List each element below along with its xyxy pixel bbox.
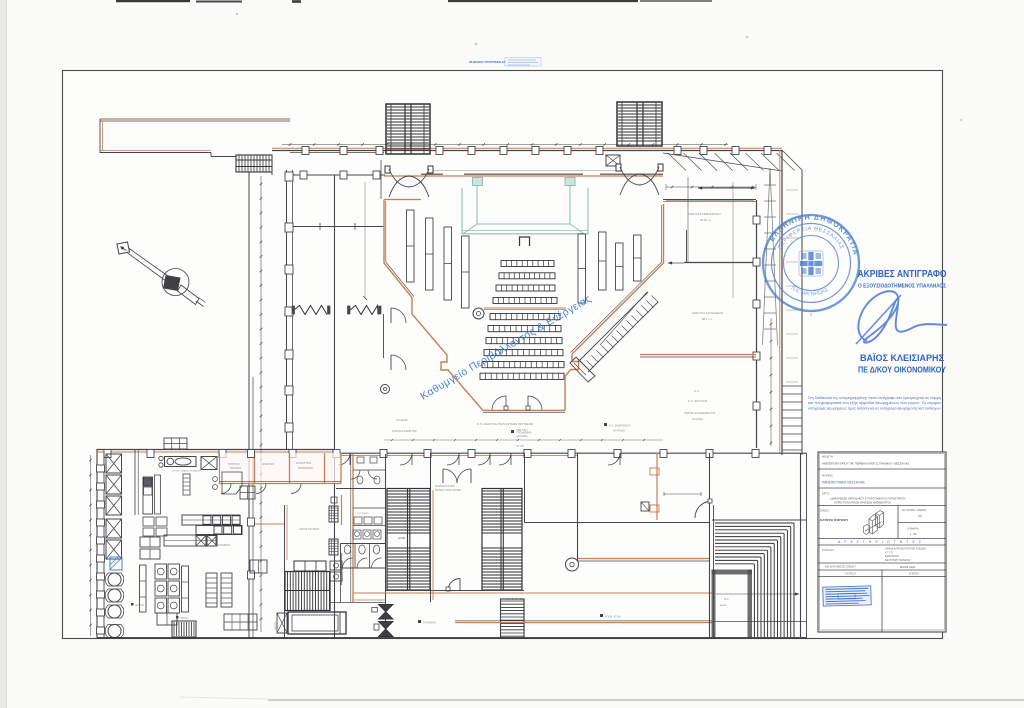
svg-text:Στη διαδικασία της υπογεγραμμέ: Στη διαδικασία της υπογεγραμμένης πιστό … — [808, 396, 941, 400]
svg-text:ΑΠΟΔΥΤΗΡΙΑ: ΑΠΟΔΥΤΗΡΙΑ — [296, 462, 312, 465]
svg-text:ΔΙΑΜΟΡΦΩΣΗ ΠΑΡΑΛΙΑΚΟΥ ΣΥΓΚΡΟΤΗ: ΔΙΑΜΟΡΦΩΣΗ ΠΑΡΑΛΙΑΚΟΥ ΣΥΓΚΡΟΤΗΜΑΤΟΣ ΠΑΠΑ… — [830, 497, 906, 501]
svg-text:ΜΕΛΕΤΗ:: ΜΕΛΕΤΗ: — [822, 455, 834, 459]
svg-text:ΨΥΚΤΙΚΟΙ: ΨΥΚΤΙΚΟΙ — [228, 463, 240, 466]
svg-text:Ο ΕΞΟΥΣΙΟΔΟΤΗΜΕΝΟΣ ΥΠΑΛΛΗΛΟΣ: Ο ΕΞΟΥΣΙΟΔΟΤΗΜΕΝΟΣ ΥΠΑΛΛΗΛΟΣ — [858, 284, 947, 290]
svg-text:Κ.Χ.: Κ.Χ. — [694, 389, 700, 393]
svg-text:ΛΟΥΤΗΡΕΣ: ΛΟΥΤΗΡΕΣ — [357, 513, 369, 515]
svg-text:ΔΙΕΥΘΥΝΣΗ ΤΕΧΝΙΚΩΝ: ΔΙΕΥΘΥΝΣΗ ΤΕΧΝΙΚΩΝ — [885, 559, 911, 562]
svg-text:υπογραφές θεωρημένες προς έκδο: υπογραφές θεωρημένες προς έκδοση και σε … — [808, 406, 941, 410]
svg-text:ΜΑΓΕΙΡΕΙΟ: ΜΑΓΕΙΡΕΙΟ — [216, 543, 230, 547]
svg-text:Κ.Χ. ΑΙΘΟΥΣΑ ΠΟΛΛΑΠΛΩΝ ΧΡΗΣΕΩΝ: Κ.Χ. ΑΙΘΟΥΣΑ ΠΟΛΛΑΠΛΩΝ ΧΡΗΣΕΩΝ — [477, 422, 533, 426]
svg-text:ΑΙΘΟΥΣΑ ΣΕΜΙΝΑΡΙΩΝ: ΑΙΘΟΥΣΑ ΣΕΜΙΝΑΡΙΩΝ — [688, 212, 721, 216]
svg-text:W.C.: W.C. — [724, 598, 730, 601]
svg-text:ΜΑΪΟΣ 2022: ΜΑΪΟΣ 2022 — [900, 565, 916, 569]
svg-text:ΕΡΓΟ:: ΕΡΓΟ: — [822, 492, 830, 496]
svg-text:Κ.Τ.Υ.Π.: Κ.Τ.Υ.Π. — [885, 552, 893, 554]
svg-text:94.30 τ.μ.: 94.30 τ.μ. — [700, 218, 712, 222]
svg-text:ΑΝΟΔΟΣ ΠΡΟΣ ΟΡΟΦΟ: ΑΝΟΔΟΣ ΠΡΟΣ ΟΡΟΦΟ — [435, 489, 461, 492]
svg-text:και πληροφοριακά του εξής αρμό: και πληροφοριακά του εξής αρμόδια θεωρημ… — [808, 401, 941, 405]
svg-text:1 : 50: 1 : 50 — [910, 532, 917, 536]
svg-text:♦ΚΛΙΜ.: ♦ΚΛΙΜ. — [398, 537, 406, 540]
svg-text:ΚΑΤΟΨΗ ΙΣΟΓΕΙΟΥ: ΚΑΤΟΨΗ ΙΣΟΓΕΙΟΥ — [820, 518, 849, 522]
svg-text:ΥΠΟΜΝΗΜΑ: ΥΠΟΜΝΗΜΑ — [516, 431, 532, 435]
svg-text:ΕΓΚΡΙΣΗ: ΕΓΚΡΙΣΗ — [909, 573, 919, 576]
svg-text:ΠΑΝΕΠΙΣΤΗΜΙΟ ΘΕΣΣΑΛΙΑΣ: ΠΑΝΕΠΙΣΤΗΜΙΟ ΘΕΣΣΑΛΙΑΣ — [822, 481, 865, 485]
svg-text:ΗΜ. ΕΚΠΟΝΗΣΗΣ ΣΧΕΔΙΟΥ: ΗΜ. ΕΚΠΟΝΗΣΗΣ ΣΧΕΔΙΟΥ — [825, 566, 856, 569]
svg-text:ΑΠΟΘ. 62.5μ²: ΑΠΟΘ. 62.5μ² — [605, 616, 621, 619]
svg-text:ΑΡ. ΚΑΤΑΣΚ. ΣΧΕΔΙΟΥ: ΑΡ. ΚΑΤΑΣΚ. ΣΧΕΔΙΟΥ — [902, 509, 927, 512]
svg-text:ΠΑΓΚΟΣ: ΠΑΓΚΟΣ — [274, 621, 277, 630]
svg-text:ΕΔΡΑ ΒΟΛΟΥ: ΕΔΡΑ ΒΟΛΟΥ — [885, 555, 900, 558]
svg-text:ΑΝΕΓΕΡΣΗ ΚΤΙΡΙΟΥ ΤΜ. ΠΕΡΙΒΑΛΛΟ: ΑΝΕΓΕΡΣΗ ΚΤΙΡΙΟΥ ΤΜ. ΠΕΡΙΒΑΛΛΟΝΤΟΣ ΠΑΝ/Μ… — [822, 462, 910, 466]
svg-text:ΧΩΡΟΣ ΔΙΑΛΕΙΜΜΑΤΟΣ: ΧΩΡΟΣ ΔΙΑΛΕΙΜΜΑΤΟΣ — [684, 411, 716, 415]
svg-text:Η=5.80μ: Η=5.80μ — [516, 434, 527, 438]
svg-text:Δ Ρ Α Σ Τ Η Ρ Ι Ο Τ Η Τ Ε Σ: Δ Ρ Α Σ Τ Η Ρ Ι Ο Τ Η Τ Ε Σ — [838, 540, 923, 544]
svg-text:ΣΥΝΤΑΞΗ:: ΣΥΝΤΑΞΗ: — [822, 549, 834, 552]
svg-text:ΣΥΝΤΑΞΗ: ΣΥΝΤΑΞΗ — [845, 573, 856, 576]
svg-text:ΨΗΦΙΑΚΗ ΥΠΟΓΡΑΦΗ ΕΓΚΡ.: ΨΗΦΙΑΚΗ ΥΠΟΓΡΑΦΗ ΕΓΚΡ. — [469, 60, 510, 64]
svg-text:4-5 ΔΙΑΔΡ: 4-5 ΔΙΑΔΡ — [396, 418, 408, 422]
svg-text:88.1 τ.μ.: 88.1 τ.μ. — [702, 317, 713, 321]
svg-text:ΠΕ Δ/ΚΟΥ ΟΙΚΟΝΟΜΙΚΟΥ: ΠΕ Δ/ΚΟΥ ΟΙΚΟΝΟΜΙΚΟΥ — [858, 365, 946, 375]
svg-text:ΘΑΛΑΜΟΙ: ΘΑΛΑΜΟΙ — [230, 467, 241, 470]
svg-text:ΚΛΙΜΑΚΟΣΤΑΣΙΟ: ΚΛΙΜΑΚΟΣΤΑΣΙΟ — [435, 485, 455, 488]
svg-text:ΠΡΟΣΩΠΙΚΟΥ: ΠΡΟΣΩΠΙΚΟΥ — [298, 467, 314, 470]
svg-text:ΑΚΡΙΒΕΣ ΑΝΤΙΓΡΑΦΟ: ΑΚΡΙΒΕΣ ΑΝΤΙΓΡΑΦΟ — [858, 269, 947, 280]
svg-text:ΚΛΙΜΑΚΑ: ΚΛΙΜΑΚΑ — [907, 528, 918, 531]
svg-text:06: 06 — [918, 514, 922, 518]
svg-text:ΔΙΑΔΡΟΜΟΣ: ΔΙΑΔΡΟΜΟΣ — [508, 598, 523, 601]
svg-text:ΧΩΡΟΣ ΠΛΥΣΕΩΣ: ΧΩΡΟΣ ΠΛΥΣΕΩΣ — [299, 528, 320, 531]
svg-text:ΣΧΕΔΙΟ:: ΣΧΕΔΙΟ: — [820, 510, 830, 513]
svg-text:104.90μ²: 104.90μ² — [692, 417, 703, 421]
svg-text:Κ.Χ. ΔΙΑΔΡΟΜΟΣ: Κ.Χ. ΔΙΑΔΡΟΜΟΣ — [609, 424, 630, 428]
svg-text:ΛΑΝΤΖΑ: ΛΑΝΤΖΑ — [135, 604, 145, 607]
svg-text:45 ΑΤΟΜΑ: 45 ΑΤΟΜΑ — [613, 430, 625, 433]
svg-text:ΚΛΙΜΑΚΑ ΔΙΑΦΥΓΗΣ: ΚΛΙΜΑΚΑ ΔΙΑΦΥΓΗΣ — [392, 429, 417, 433]
svg-text:37.40: 37.40 — [516, 444, 524, 448]
svg-text:ΒΑΪΟΣ ΚΛΕΙΣΙΑΡΗΣ: ΒΑΪΟΣ ΚΛΕΙΣΙΑΡΗΣ — [860, 353, 944, 363]
svg-text:ΟΜΑΔΑ ΚΑΤΑΣΚΕΥΑΣΤΙΚΩΝ ΣΧΕΔΙΩΝ: ΟΜΑΔΑ ΚΑΤΑΣΚΕΥΑΣΤΙΚΩΝ ΣΧΕΔΙΩΝ — [885, 548, 926, 551]
svg-text:ΑΠΟΘΗΚΗ: ΑΠΟΘΗΚΗ — [423, 622, 436, 625]
svg-text:ΑΠΟΘΗΚΗ: ΑΠΟΘΗΚΗ — [262, 463, 274, 466]
svg-text:Κ.Χ. ΦΟΥΑΓΙΕ: Κ.Χ. ΦΟΥΑΓΙΕ — [688, 399, 707, 403]
svg-text:ΑΙΘΟΥΣΑ ΔΙΑΛΕΞΕΩΝ: ΑΙΘΟΥΣΑ ΔΙΑΛΕΞΕΩΝ — [692, 311, 723, 315]
svg-text:ΠΡΟΕΤΟΙΜΑΣΙΑ ΓΕΥΜΑΤΩΝ: ΠΡΟΕΤΟΙΜΑΣΙΑ ΓΕΥΜΑΤΩΝ — [172, 470, 201, 473]
svg-text:ΠΑΓΚΟΙ: ΠΑΓΚΟΙ — [180, 617, 189, 620]
svg-text:ΚΤΙΡΙΟ ΠΟΛΛΑΠΛΩΝ ΧΡΗΣΕΩΝ ΑΜΦΙΘ: ΚΤΙΡΙΟ ΠΟΛΛΑΠΛΩΝ ΧΡΗΣΕΩΝ ΑΜΦΙΘΕΑΤΡΟΥ — [834, 501, 892, 505]
svg-text:ΑΜΕΑ: ΑΜΕΑ — [720, 604, 727, 607]
svg-text:ΦΟΡΕΑΣ:: ΦΟΡΕΑΣ: — [822, 474, 834, 478]
